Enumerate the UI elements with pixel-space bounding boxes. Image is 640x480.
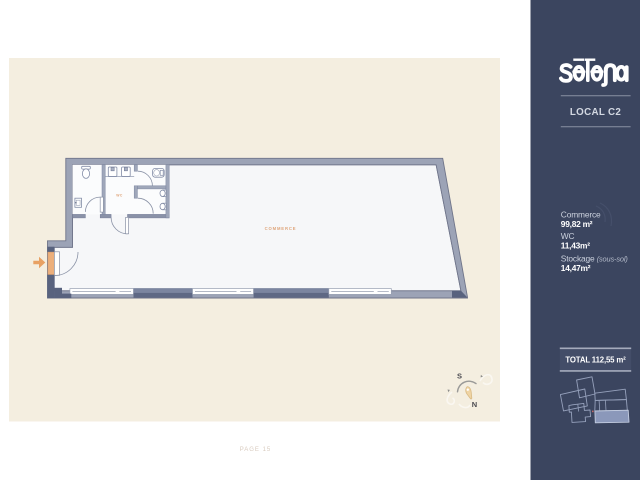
svg-text:WC: WC (116, 193, 123, 197)
svg-text:S: S (457, 372, 462, 381)
svg-text:14,47m²: 14,47m² (561, 263, 591, 273)
svg-text:11,43m²: 11,43m² (561, 241, 590, 251)
svg-text:PAGE 15: PAGE 15 (240, 447, 272, 453)
svg-text:Commerce: Commerce (561, 209, 601, 219)
svg-text:99,82 m²: 99,82 m² (561, 219, 593, 229)
svg-text:Stockage (sous-sol): Stockage (sous-sol) (561, 253, 629, 263)
svg-text:LOCAL C2: LOCAL C2 (570, 107, 621, 118)
svg-text:WC: WC (561, 231, 575, 241)
svg-text:TOTAL 112,55 m²: TOTAL 112,55 m² (565, 355, 626, 364)
svg-text:N: N (472, 400, 477, 409)
svg-text:COMMERCE: COMMERCE (265, 226, 297, 231)
